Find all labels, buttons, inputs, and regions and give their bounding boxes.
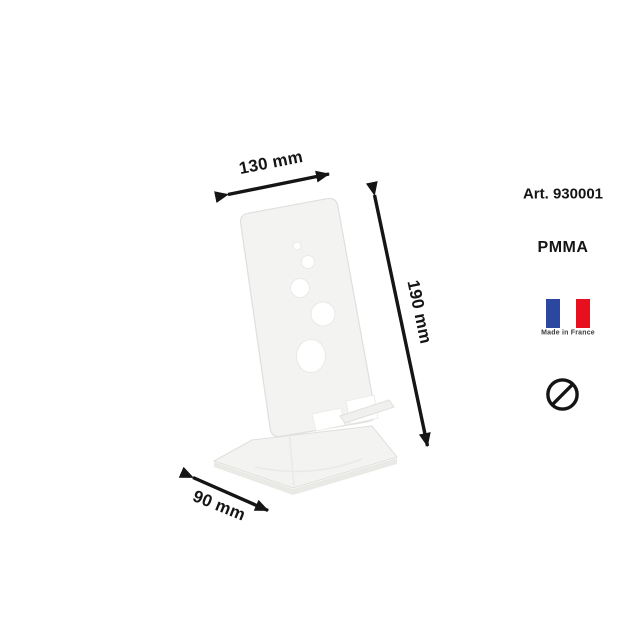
- flag-red-stripe: [576, 299, 590, 328]
- hole-4: [311, 302, 335, 326]
- product-sheet: 130 mm 190 mm 90 mm Art. 930001 PMMA Mad…: [0, 0, 640, 640]
- stand-back-plate: [241, 198, 395, 436]
- material-label: PMMA: [538, 239, 589, 257]
- hole-3: [291, 279, 310, 298]
- stand-base: [214, 426, 397, 495]
- hole-2: [302, 256, 315, 269]
- flag-white-stripe: [560, 299, 576, 328]
- made-in-france-label: Made in France: [541, 330, 595, 337]
- product-illustration: [0, 0, 640, 640]
- hole-1: [293, 242, 301, 250]
- flag-blue-stripe: [546, 299, 560, 328]
- article-number: Art. 930001: [523, 186, 603, 203]
- hole-5: [297, 340, 326, 373]
- french-flag-icon: [546, 299, 590, 328]
- no-symbol-icon: [544, 376, 582, 414]
